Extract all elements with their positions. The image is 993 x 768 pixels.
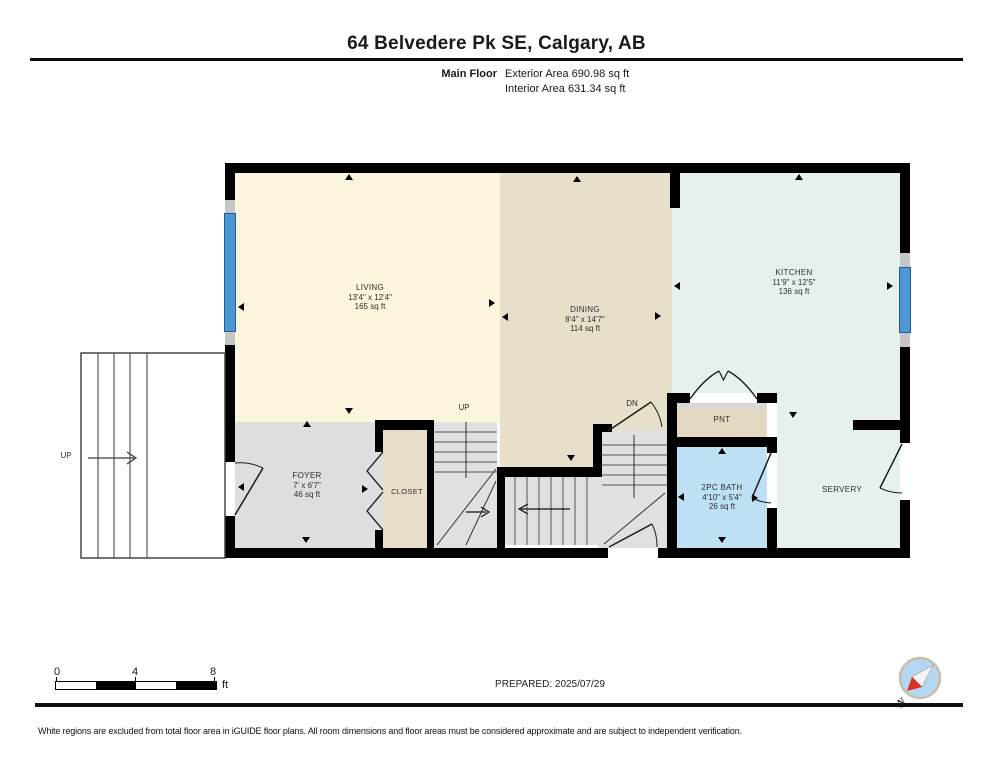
kitchen-window [899,267,911,333]
stairs-mid-floor [503,477,602,545]
room-label-pantry: PNT [682,415,762,425]
dimension-arrow [238,303,244,311]
dimension-arrow [567,455,575,461]
scale-bar [55,681,217,690]
floor-plan-page: 64 Belvedere Pk SE, Calgary, AB Main Flo… [0,0,993,768]
scale-tick-8: 8 [210,666,216,678]
room-label-living: LIVING 13'4" x 12'4" 165 sq ft [290,283,450,312]
scale-unit: ft [222,679,228,691]
wall-closet-jamb-top [375,430,383,452]
wall-left-2 [225,345,235,462]
disclaimer-text: White regions are excluded from total fl… [38,726,742,736]
page-title: 64 Belvedere Pk SE, Calgary, AB [0,33,993,55]
dimension-arrow [489,299,495,307]
wall-pantry-bath [667,437,777,447]
header-divider [30,58,963,61]
dimension-arrow [502,313,508,321]
dimension-arrow [795,174,803,180]
wall-pantry-bath-left [667,393,677,548]
room-label-dining: DINING 8'4" x 14'7" 114 sq ft [505,305,665,334]
wall-pantry-top-right [757,393,777,403]
dimension-arrow [887,282,893,290]
dimension-arrow [345,174,353,180]
dimension-arrow [718,537,726,543]
porch-up-label: UP [46,451,86,461]
wall-bottom-2 [658,548,910,558]
dimension-arrow [678,493,684,501]
wall-bath-right-bottom [767,508,777,548]
dimension-arrow [362,485,368,493]
wall-dining-kitchen-stub [670,173,680,208]
dimension-arrow [789,412,797,418]
wall-dn-jamb-lip [593,424,612,432]
dimension-arrow [674,282,680,290]
window-sill [900,253,910,267]
dimension-arrow [303,421,311,427]
stairs-up-floor [434,422,497,548]
dimension-arrow [655,312,661,320]
wall-right-1 [900,163,910,253]
wall-pantry-top-left [667,393,690,403]
dimension-arrow [302,537,310,543]
exterior-area: Exterior Area 690.98 sq ft [505,68,629,80]
wall-top [225,163,910,173]
wall-closet-stairs [427,420,434,548]
dimension-arrow [345,408,353,414]
wall-closet-top [375,420,434,430]
room-label-servery: SERVERY [802,485,882,495]
wall-bottom-1 [225,548,608,558]
dimension-arrow [718,448,726,454]
floor-label: Main Floor [397,68,497,80]
compass-icon: N [893,652,947,710]
wall-stairwell-left [497,467,505,548]
scale-tick-0: 0 [54,666,60,678]
wall-bath-right-top [767,447,777,453]
dimension-arrow [752,494,758,502]
stairs-dn-floor [598,430,667,548]
dimension-arrow [238,483,244,491]
compass-north-label: N [893,694,909,710]
living-window [224,213,236,332]
window-sill [225,332,235,345]
wall-closet-jamb-bottom [375,530,383,548]
interior-area: Interior Area 631.34 sq ft [505,83,625,95]
room-label-kitchen: KITCHEN 11'9" x 12'5" 136 sq ft [714,268,874,297]
wall-kitchen-servery-stub [853,420,910,430]
window-sill [225,200,235,213]
window-sill [900,333,910,347]
room-label-foyer: FOYER 7' x 6'7" 46 sq ft [247,471,367,500]
prepared-date: PREPARED: 2025/07/29 [420,679,680,690]
wall-stairwell-top [497,467,602,477]
stairs-up-label: UP [444,403,484,413]
wall-left-1 [225,163,235,200]
room-label-porch: PORCH [148,452,228,462]
stairs-dn-label: DN [612,399,652,409]
dimension-arrow [573,176,581,182]
footer-divider [35,703,963,707]
room-label-closet: CLOSET [367,487,447,497]
pantry-threshold [677,403,767,409]
